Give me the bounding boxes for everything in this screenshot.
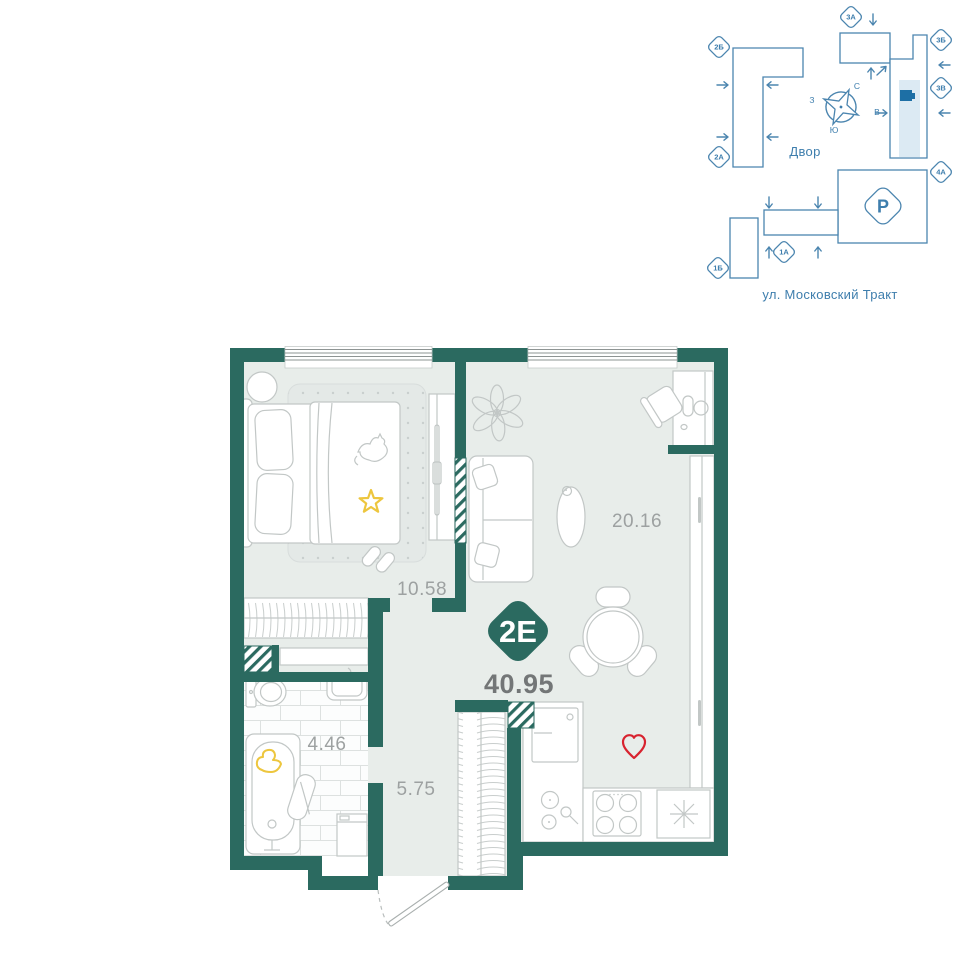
svg-text:2А: 2А [714,153,724,162]
bathroom-area-label: 4.46 [308,734,347,755]
svg-text:3В: 3В [936,84,946,93]
wall-segment [230,672,368,682]
bedroom-area-label: 10.58 [397,579,447,600]
wall-segment [368,783,383,876]
wall-segment [714,348,728,856]
wall-segment [230,348,244,870]
fridge-icon [532,708,578,762]
unit-badge-label: 2Е [499,614,537,649]
shelf-icon [280,648,368,665]
pouf-icon [557,487,585,548]
minimap-building-3a[interactable] [840,33,890,63]
compass-south: Ю [830,125,839,135]
wall-segment [455,362,466,458]
wall-segment [368,598,383,747]
building-label-3a: 3А [839,5,863,29]
svg-text:4А: 4А [936,168,946,177]
building-label-4a: 4А [929,160,953,184]
vent-shaft-icon [508,702,534,728]
window-icon [528,347,677,369]
building-label-2b: 2Б [707,35,731,59]
living-area-label: 20.16 [612,511,662,532]
vent-shaft-icon [455,458,466,543]
svg-text:3Б: 3Б [936,36,946,45]
wall-segment [455,700,508,712]
building-label-1a: 1А [772,240,796,264]
bed-icon [240,399,400,547]
compass-east: В [874,107,880,117]
floor-plan: 2Е 40.95 10.58 20.16 4.46 5.75 [230,347,728,927]
wall-segment [668,445,714,454]
minimap-building-1-bar[interactable] [764,210,838,235]
tall-closet-icon [690,456,714,788]
svg-text:3А: 3А [846,13,856,22]
building-label-1b: 1Б [706,256,730,280]
svg-text:1Б: 1Б [713,264,723,273]
compass-west: З [809,95,814,105]
hall-closet-icon [458,712,505,876]
building-label-3v: 3В [929,76,953,100]
entrance-door [378,881,450,926]
site-plan-minimap: С В Ю З 2Б 2А 3А 3Б 3В 4А [706,5,953,302]
svg-text:1А: 1А [779,248,789,257]
wall-segment [230,856,322,870]
vent-shaft-icon [244,646,272,672]
apartment-plan-page: С В Ю З 2Б 2А 3А 3Б 3В 4А [0,0,960,960]
wall-segment [272,645,279,673]
compass-north: С [854,81,860,91]
svg-text:P: P [877,196,889,216]
wall-segment [509,842,728,856]
building-label-3b: 3Б [929,28,953,52]
bedroom-wardrobe-icon [429,394,455,540]
plan-svg: С В Ю З 2Б 2А 3А 3Б 3В 4А [0,0,960,960]
door-leaf [388,881,450,926]
window-icon [285,347,432,369]
svg-text:2Б: 2Б [714,43,724,52]
wall-segment [448,876,523,890]
building-label-2a: 2А [707,145,731,169]
hallway-area-label: 5.75 [397,779,436,800]
sofa-icon [469,456,533,582]
washing-machine-icon [337,814,367,856]
wall-segment [432,598,466,612]
bedside-stool-icon [247,372,277,402]
total-area-label: 40.95 [484,669,554,699]
wall-segment [507,728,521,876]
built-in-closet-icon [244,598,368,638]
street-label: ул. Московский Тракт [762,287,897,302]
compass-rose-icon: С В Ю З [809,81,880,135]
courtyard-label: Двор [789,144,820,159]
minimap-building-1-wing[interactable] [730,218,758,278]
